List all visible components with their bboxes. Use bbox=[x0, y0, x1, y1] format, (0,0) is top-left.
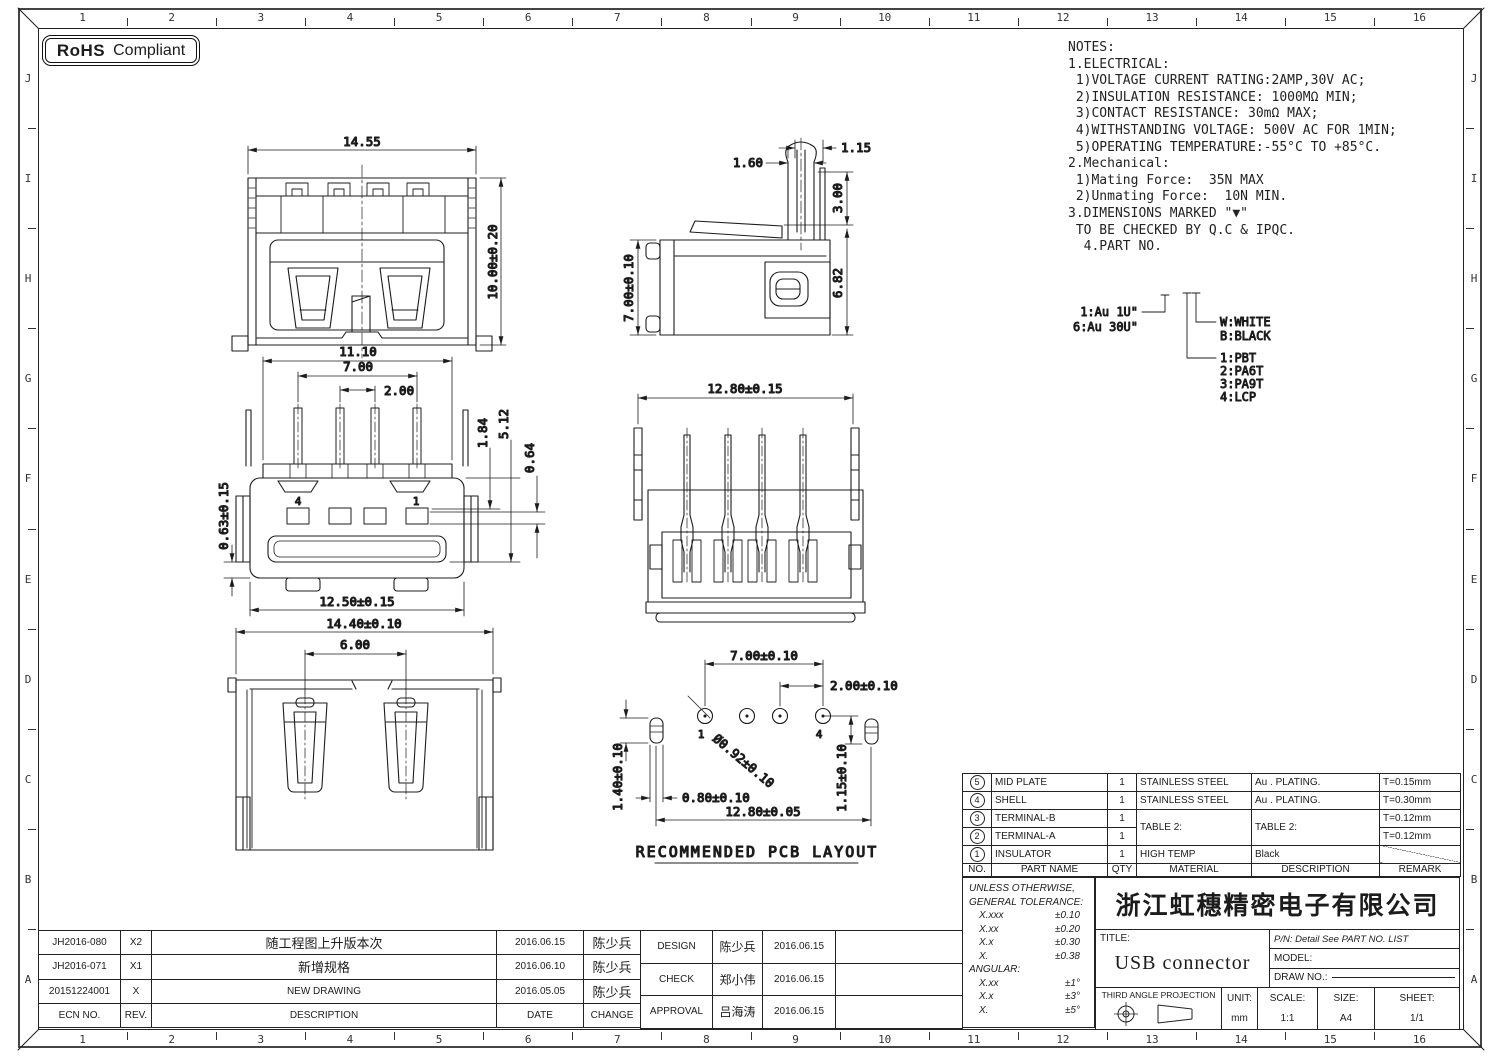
dim-pcb-0-80: 0.80±0.10 bbox=[682, 790, 750, 805]
table-row: JH2016-080 X2 随工程图上升版本次 2016.06.15 陈少兵 bbox=[39, 931, 641, 955]
rev-date: 2016.06.15 bbox=[497, 931, 584, 955]
rev-header-description: DESCRIPTION bbox=[152, 1003, 497, 1027]
bom-description: TABLE 2: bbox=[1252, 809, 1380, 845]
draw-no-label: DRAW NO.: bbox=[1274, 972, 1328, 983]
dim-top-5-12: 5.12 bbox=[496, 409, 511, 439]
unit-value: mm bbox=[1222, 1009, 1258, 1031]
title-bottom-row: THIRD ANGLE PROJECTION UNIT: mm SCALE: 1… bbox=[1095, 988, 1460, 1030]
bom-material: STAINLESS STEEL bbox=[1137, 774, 1252, 792]
dim-pcb-1-15: 1.15±0.10 bbox=[834, 744, 849, 812]
bom-header-description: DESCRIPTION bbox=[1252, 863, 1380, 876]
drawing-sheet: 12345678910111213141516 1234567891011121… bbox=[0, 0, 1502, 1059]
bom-header-remark: REMARK bbox=[1380, 863, 1461, 876]
rev-description: 新增规格 bbox=[152, 955, 497, 979]
view-top: 11.10 7.00 2.00 1.84 5.12 0.64 0.63±0.15… bbox=[216, 344, 545, 616]
view-front: 14.55 10.00±0.20 bbox=[232, 134, 506, 358]
tolerance-line2: GENERAL TOLERANCE: bbox=[969, 896, 1088, 910]
bom-remark-blank bbox=[1380, 845, 1461, 863]
approval-blank bbox=[836, 996, 963, 1029]
approval-date: 2016.06.15 bbox=[763, 931, 836, 964]
scale-value: 1:1 bbox=[1258, 1009, 1318, 1031]
approval-date: 2016.06.15 bbox=[763, 963, 836, 996]
legend-pbt: 1:PBT bbox=[1220, 351, 1256, 365]
bom-qty: 1 bbox=[1108, 845, 1137, 863]
approval-role: CHECK bbox=[641, 963, 713, 996]
bom-material: HIGH TEMP bbox=[1137, 845, 1252, 863]
table-row: 3 TERMINAL-B 1 TABLE 2: TABLE 2: T=0.12m… bbox=[963, 809, 1461, 827]
sheet-label: SHEET: bbox=[1375, 988, 1460, 1009]
rev-change: 陈少兵 bbox=[584, 979, 641, 1003]
table-row: 5 MID PLATE 1 STAINLESS STEEL Au . PLATI… bbox=[963, 774, 1461, 792]
tol-value: ±1° bbox=[1065, 977, 1080, 991]
dim-top-0-63: 0.63±0.15 bbox=[216, 482, 231, 550]
dim-rear-width: 12.80±0.15 bbox=[707, 381, 782, 396]
model-label: MODEL: bbox=[1274, 953, 1312, 964]
table-row: CHECK 郑小伟 2016.06.15 bbox=[641, 963, 963, 996]
bom-remark: T=0.15mm bbox=[1380, 774, 1461, 792]
part-no-legend: 1:Au 1U" 6:Au 30U" W:WHITE B:BLACK 1:PBT… bbox=[1073, 293, 1271, 404]
pin-label-1: 1 bbox=[413, 495, 420, 508]
rev-description: NEW DRAWING bbox=[152, 979, 497, 1003]
bom-table: 5 MID PLATE 1 STAINLESS STEEL Au . PLATI… bbox=[962, 773, 1461, 877]
dim-side-1-15: 1.15 bbox=[841, 140, 871, 155]
view-pcb-layout: 7.00±0.10 2.00±0.10 Ø0.92±0.10 1.40±0.10… bbox=[610, 648, 898, 863]
table-row: JH2016-071 X1 新增规格 2016.06.10 陈少兵 bbox=[39, 955, 641, 979]
unit-cell: UNIT: mm bbox=[1222, 988, 1258, 1030]
tol-label: X. bbox=[979, 950, 988, 964]
legend-pa9t: 3:PA9T bbox=[1220, 377, 1263, 391]
rev-change: 陈少兵 bbox=[584, 931, 641, 955]
size-label: SIZE: bbox=[1318, 988, 1375, 1009]
bom-remark: T=0.30mm bbox=[1380, 791, 1461, 809]
table-row: 1 INSULATOR 1 HIGH TEMP Black bbox=[963, 845, 1461, 863]
tol-value: ±3° bbox=[1065, 990, 1080, 1004]
bom-qty: 1 bbox=[1108, 827, 1137, 845]
dim-side-3-00: 3.00 bbox=[830, 183, 845, 213]
tol-value: ±0.10 bbox=[1055, 909, 1080, 923]
company-name: 浙江虹穗精密电子有限公司 bbox=[1095, 877, 1460, 930]
bom-qty: 1 bbox=[1108, 774, 1137, 792]
dim-front-height: 10.00±0.20 bbox=[485, 224, 500, 299]
dim-bottom-6-00: 6.00 bbox=[340, 637, 370, 652]
bom-qty: 1 bbox=[1108, 809, 1137, 827]
bom-description: Au . PLATING. bbox=[1252, 791, 1380, 809]
projection-cell: THIRD ANGLE PROJECTION bbox=[1095, 988, 1222, 1030]
view-side: 1.15 1.60 3.00 6.82 7.00±0.10 bbox=[621, 138, 871, 335]
rev-header-ecn: ECN NO. bbox=[39, 1003, 121, 1027]
bom-part-name: INSULATOR bbox=[992, 845, 1108, 863]
legend-white: W:WHITE bbox=[1220, 315, 1271, 329]
dim-top-2-00: 2.00 bbox=[384, 383, 414, 398]
approval-role: APPROVAL bbox=[641, 996, 713, 1029]
sheet-cell: SHEET: 1/1 bbox=[1375, 988, 1460, 1030]
bom-part-name: TERMINAL-A bbox=[992, 827, 1108, 845]
bom-description: Black bbox=[1252, 845, 1380, 863]
rev-header-rev: REV. bbox=[121, 1003, 152, 1027]
tol-value: ±5° bbox=[1065, 1004, 1080, 1018]
legend-pa6t: 2:PA6T bbox=[1220, 364, 1263, 378]
rev-header-date: DATE bbox=[497, 1003, 584, 1027]
draw-no-row: DRAW NO.: bbox=[1270, 969, 1460, 988]
bom-item-no: 3 bbox=[970, 811, 985, 826]
legend-lcp: 4:LCP bbox=[1220, 390, 1256, 404]
tol-label: X.xx bbox=[979, 923, 998, 937]
bom-part-name: SHELL bbox=[992, 791, 1108, 809]
dim-pcb-1-40: 1.40±0.10 bbox=[610, 743, 625, 811]
pin-label-4: 4 bbox=[295, 495, 302, 508]
approval-blank bbox=[836, 931, 963, 964]
approval-blank bbox=[836, 963, 963, 996]
tol-value: ±0.30 bbox=[1055, 936, 1080, 950]
pcb-layout-caption: RECOMMENDED PCB LAYOUT bbox=[636, 843, 879, 861]
approval-name: 郑小伟 bbox=[713, 963, 763, 996]
part-number: P/N: Detail See PART NO. LIST bbox=[1270, 930, 1460, 949]
rev-rev: X2 bbox=[121, 931, 152, 955]
tol-label: X.x bbox=[979, 936, 993, 950]
revision-header-row: ECN NO. REV. DESCRIPTION DATE CHANGE bbox=[39, 1003, 641, 1027]
rev-date: 2016.06.10 bbox=[497, 955, 584, 979]
dim-side-1-60: 1.60 bbox=[733, 155, 763, 170]
tolerance-block: UNLESS OTHERWISE, GENERAL TOLERANCE: X.x… bbox=[962, 877, 1095, 1028]
title-right-stack: P/N: Detail See PART NO. LIST MODEL: DRA… bbox=[1270, 930, 1460, 988]
bom-part-name: MID PLATE bbox=[992, 774, 1108, 792]
pcb-pin-label-1: 1 bbox=[698, 728, 705, 741]
legend-au-1u: 1:Au 1U" bbox=[1080, 305, 1138, 319]
model-row: MODEL: bbox=[1270, 949, 1460, 968]
dim-pcb-hole-dia: Ø0.92±0.10 bbox=[710, 731, 777, 791]
pcb-pin-label-4: 4 bbox=[816, 728, 823, 741]
tolerance-angular: ANGULAR: bbox=[969, 963, 1088, 977]
projection-label: THIRD ANGLE PROJECTION bbox=[1096, 990, 1221, 1000]
bom-part-name: TERMINAL-B bbox=[992, 809, 1108, 827]
size-value: A4 bbox=[1318, 1009, 1375, 1031]
bom-item-no: 4 bbox=[970, 793, 985, 808]
revision-table: JH2016-080 X2 随工程图上升版本次 2016.06.15 陈少兵 J… bbox=[38, 930, 641, 1028]
rev-date: 2016.05.05 bbox=[497, 979, 584, 1003]
rev-ecn: 20151224001 bbox=[39, 979, 121, 1003]
approval-table: DESIGN 陈少兵 2016.06.15 CHECK 郑小伟 2016.06.… bbox=[640, 930, 963, 1029]
dim-front-width: 14.55 bbox=[343, 134, 381, 149]
bom-remark: T=0.12mm bbox=[1380, 809, 1461, 827]
rev-rev: X bbox=[121, 979, 152, 1003]
approval-name: 吕海涛 bbox=[713, 996, 763, 1029]
dim-pcb-2-00: 2.00±0.10 bbox=[830, 678, 898, 693]
bom-description: Au . PLATING. bbox=[1252, 774, 1380, 792]
sheet-value: 1/1 bbox=[1375, 1009, 1460, 1031]
dim-side-height: 7.00±0.10 bbox=[621, 254, 636, 322]
legend-black: B:BLACK bbox=[1220, 329, 1271, 343]
title-label: TITLE: bbox=[1100, 933, 1130, 944]
rev-description: 随工程图上升版本次 bbox=[152, 931, 497, 955]
dim-top-7-00: 7.00 bbox=[343, 359, 373, 374]
table-row: APPROVAL 吕海涛 2016.06.15 bbox=[641, 996, 963, 1029]
legend-au-30u: 6:Au 30U" bbox=[1073, 320, 1138, 334]
bom-header-qty: QTY bbox=[1108, 863, 1137, 876]
unit-label: UNIT: bbox=[1222, 988, 1258, 1009]
bom-item-no: 5 bbox=[970, 775, 985, 790]
bom-header-part-name: PART NAME bbox=[992, 863, 1108, 876]
dim-side-6-82: 6.82 bbox=[830, 268, 845, 298]
tol-value: ±0.20 bbox=[1055, 923, 1080, 937]
dim-pcb-7-00: 7.00±0.10 bbox=[730, 648, 798, 663]
rev-rev: X1 bbox=[121, 955, 152, 979]
approval-name: 陈少兵 bbox=[713, 931, 763, 964]
draw-no-line bbox=[1332, 977, 1455, 978]
table-row: 4 SHELL 1 STAINLESS STEEL Au . PLATING. … bbox=[963, 791, 1461, 809]
title-row: TITLE: USB connector P/N: Detail See PAR… bbox=[1095, 930, 1460, 988]
approval-role: DESIGN bbox=[641, 931, 713, 964]
table-row: 20151224001 X NEW DRAWING 2016.05.05 陈少兵 bbox=[39, 979, 641, 1003]
tol-value: ±0.38 bbox=[1055, 950, 1080, 964]
dim-pcb-12-80: 12.80±0.05 bbox=[725, 804, 800, 819]
bom-material: STAINLESS STEEL bbox=[1137, 791, 1252, 809]
rev-header-change: CHANGE bbox=[584, 1003, 641, 1027]
rev-ecn: JH2016-071 bbox=[39, 955, 121, 979]
tol-label: X.xxx bbox=[979, 909, 1003, 923]
bom-item-no: 2 bbox=[970, 829, 985, 844]
dim-top-1-84: 1.84 bbox=[475, 418, 490, 448]
bom-header-row: NO. PART NAME QTY MATERIAL DESCRIPTION R… bbox=[963, 863, 1461, 876]
dim-top-11-10: 11.10 bbox=[339, 344, 377, 359]
third-angle-projection-icon bbox=[1112, 1002, 1202, 1026]
bom-item-no: 1 bbox=[970, 847, 985, 862]
size-cell: SIZE: A4 bbox=[1318, 988, 1375, 1030]
view-rear: 12.80±0.15 bbox=[634, 381, 865, 622]
tol-label: X.xx bbox=[979, 977, 998, 991]
approval-date: 2016.06.15 bbox=[763, 996, 836, 1029]
rev-change: 陈少兵 bbox=[584, 955, 641, 979]
dim-top-0-64: 0.64 bbox=[522, 443, 537, 473]
tol-label: X. bbox=[979, 1004, 988, 1018]
dim-top-12-50: 12.50±0.15 bbox=[319, 594, 394, 609]
bom-remark: T=0.12mm bbox=[1380, 827, 1461, 845]
scale-cell: SCALE: 1:1 bbox=[1258, 988, 1318, 1030]
table-row: DESIGN 陈少兵 2016.06.15 bbox=[641, 931, 963, 964]
view-bottom: 14.40±0.10 6.00 bbox=[228, 616, 501, 850]
bom-material: TABLE 2: bbox=[1137, 809, 1252, 845]
drawing-title: USB connector bbox=[1096, 952, 1269, 975]
bom-header-no: NO. bbox=[963, 863, 992, 876]
title-cell: TITLE: USB connector bbox=[1095, 930, 1270, 988]
tolerance-line1: UNLESS OTHERWISE, bbox=[969, 882, 1088, 896]
dim-bottom-width: 14.40±0.10 bbox=[326, 616, 401, 631]
bom-header-material: MATERIAL bbox=[1137, 863, 1252, 876]
scale-label: SCALE: bbox=[1258, 988, 1318, 1009]
bom-qty: 1 bbox=[1108, 791, 1137, 809]
rev-ecn: JH2016-080 bbox=[39, 931, 121, 955]
tol-label: X.x bbox=[979, 990, 993, 1004]
